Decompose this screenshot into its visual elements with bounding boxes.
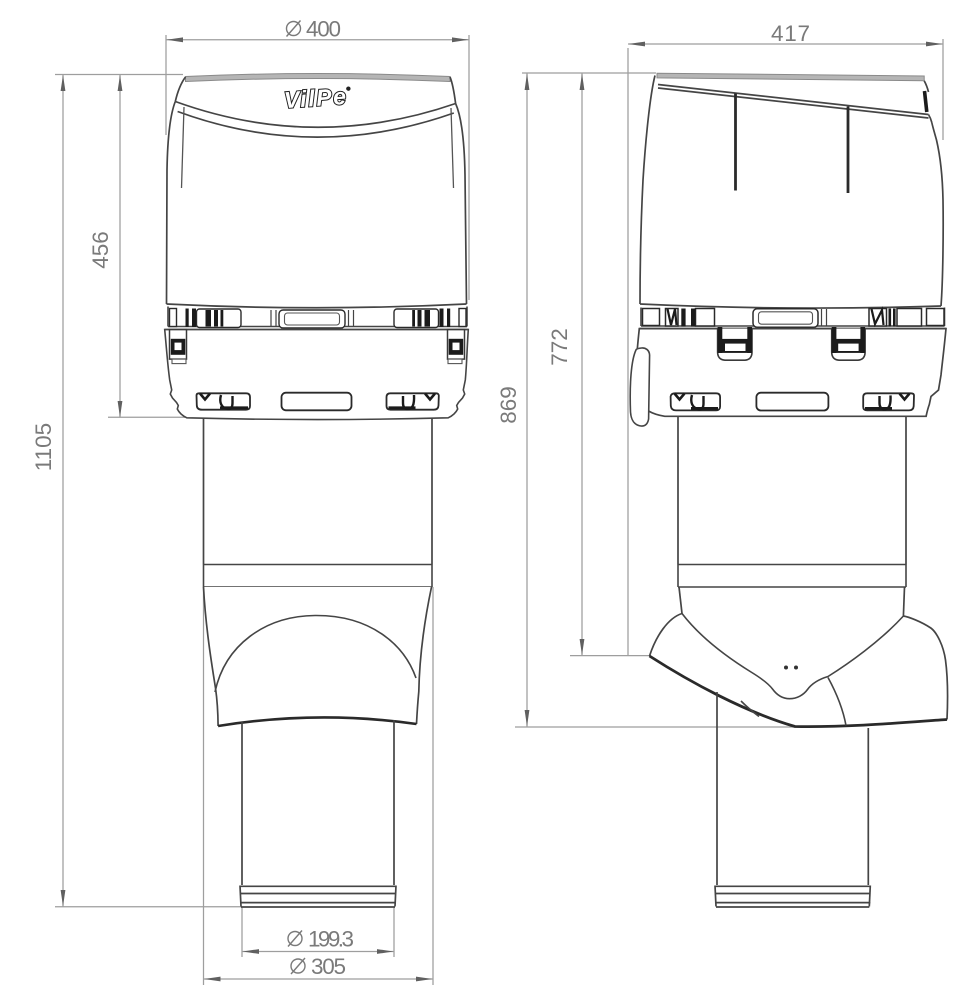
svg-text:772: 772 [547,328,572,366]
svg-text:456: 456 [88,231,113,269]
svg-text:1105: 1105 [31,423,56,471]
svg-text:417: 417 [771,21,810,46]
svg-text:305: 305 [311,954,346,979]
svg-text:869: 869 [496,386,521,424]
svg-text:199.3: 199.3 [308,926,354,951]
svg-text:400: 400 [306,16,341,41]
